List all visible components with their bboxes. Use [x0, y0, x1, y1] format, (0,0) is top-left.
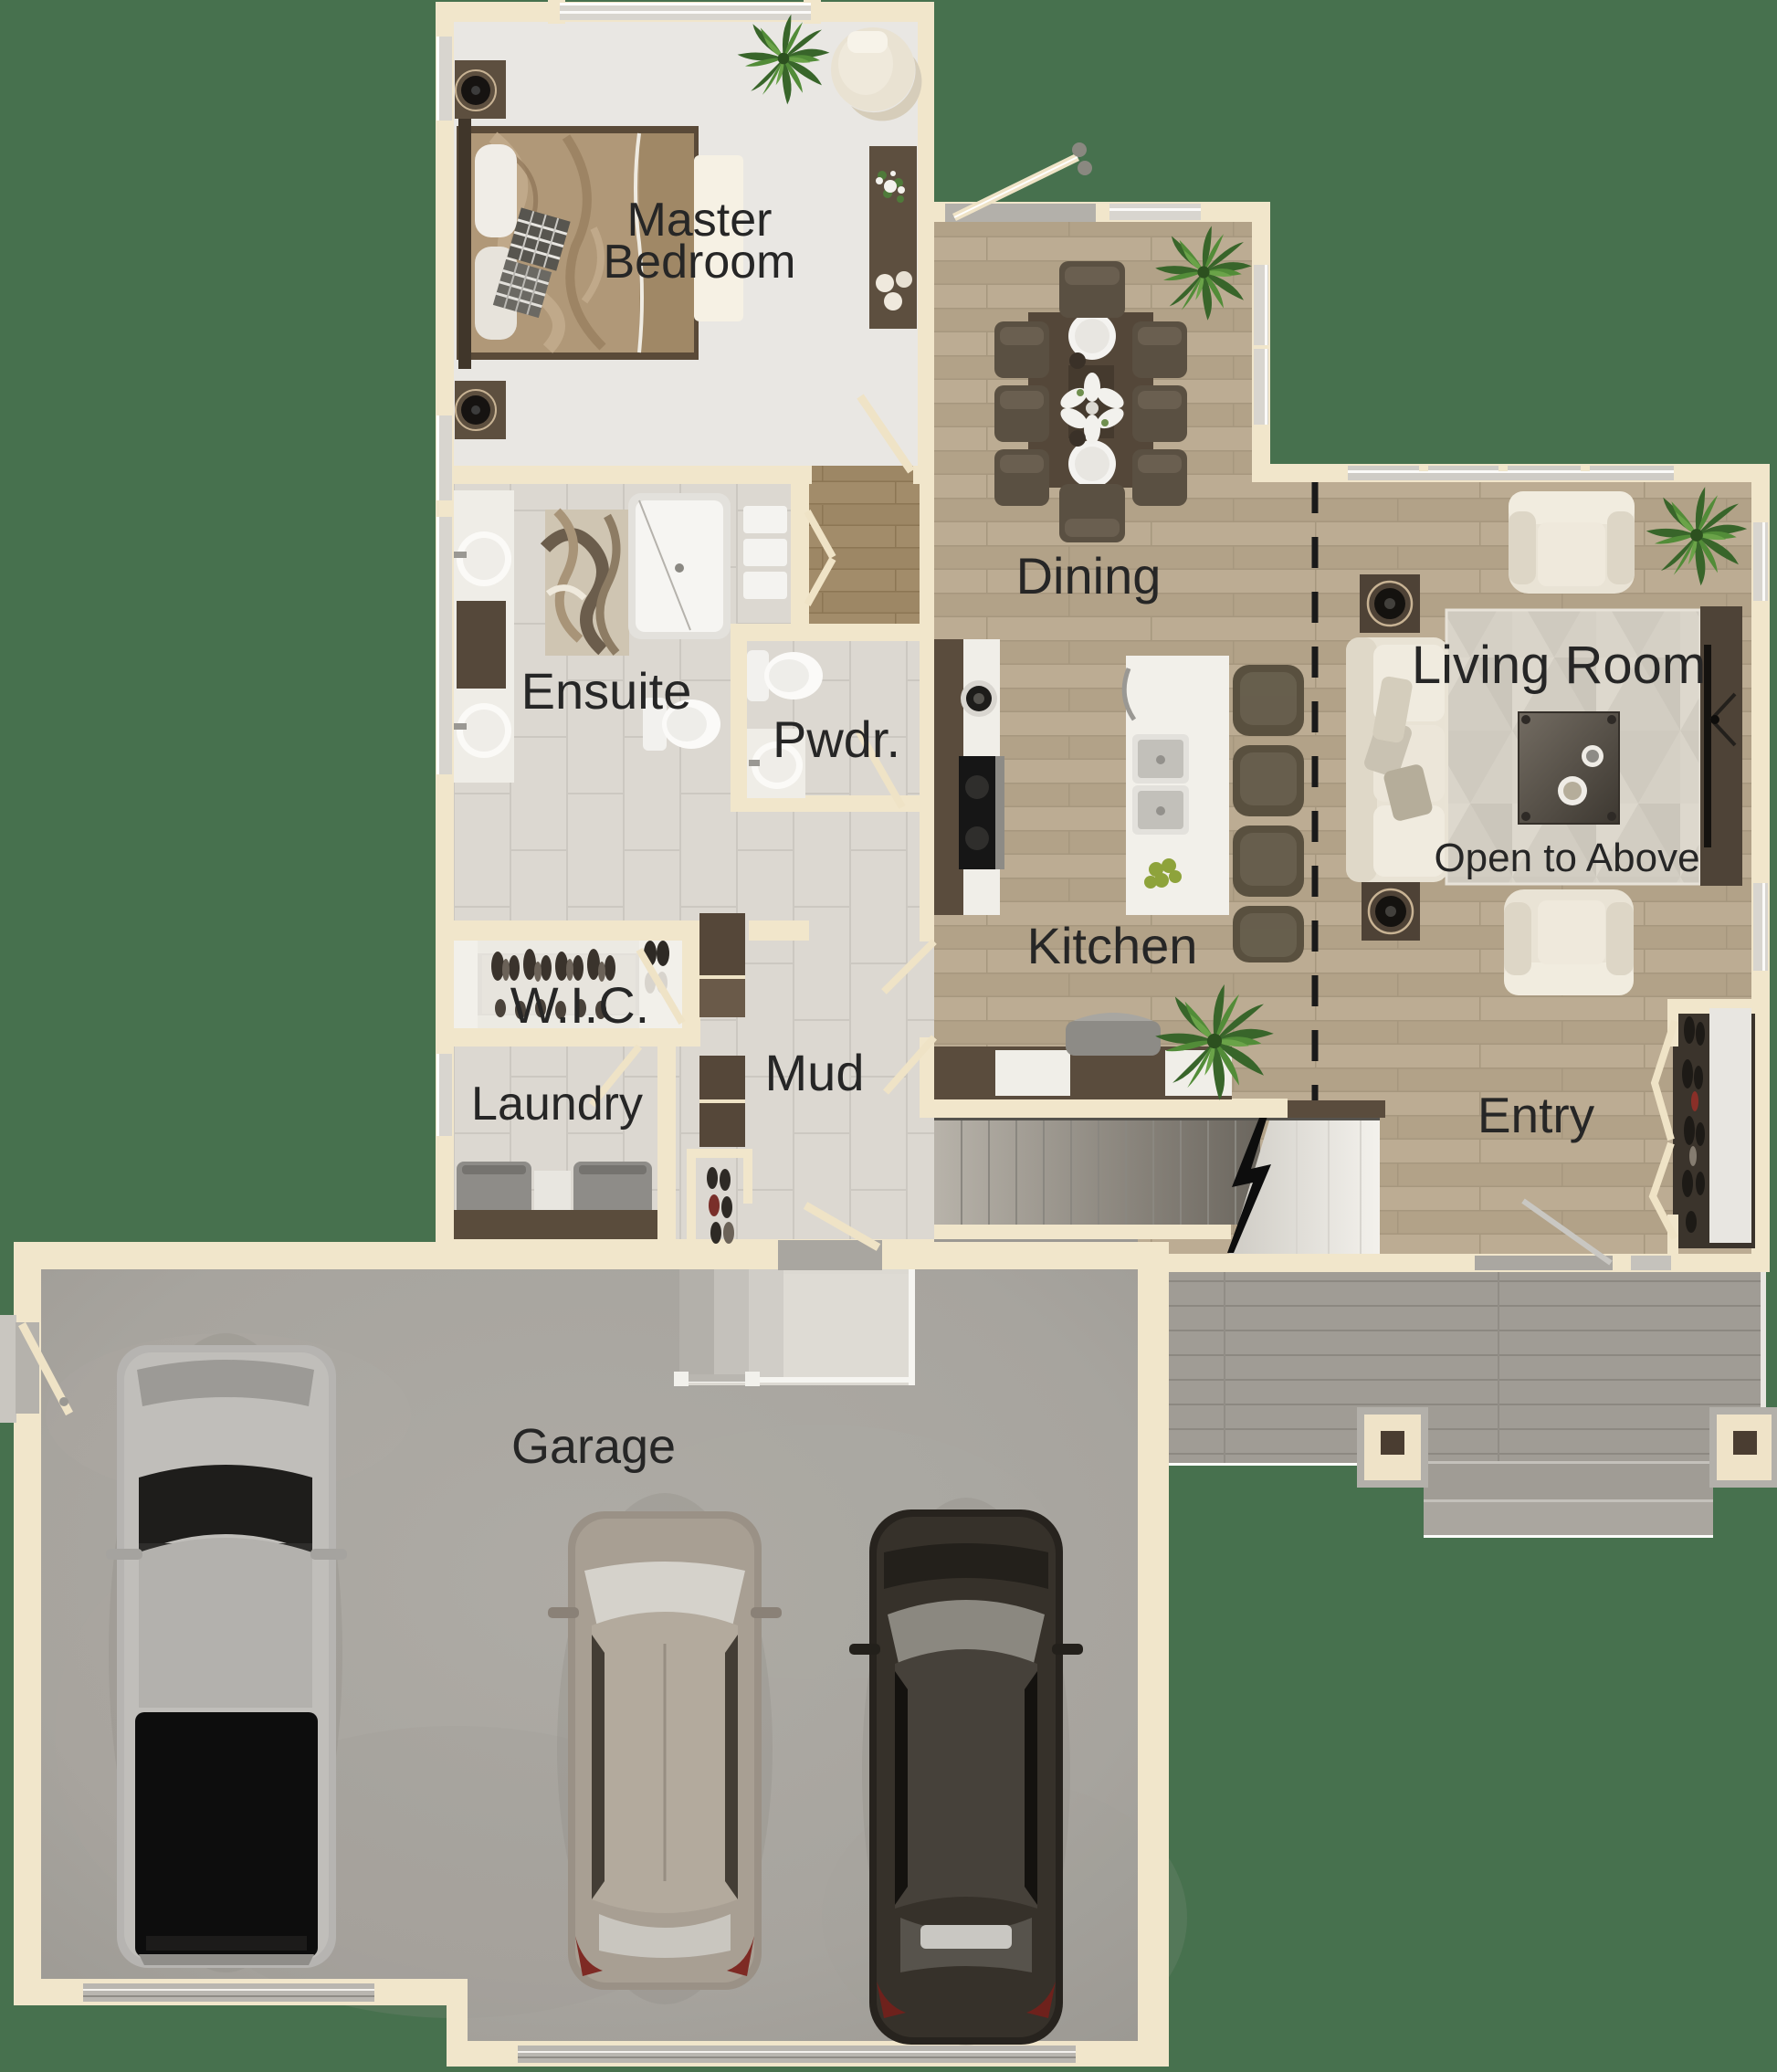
- svg-text:Dining: Dining: [1016, 547, 1162, 605]
- svg-text:Open to Above: Open to Above: [1434, 836, 1699, 880]
- svg-text:Ensuite: Ensuite: [521, 662, 692, 720]
- svg-text:Laundry: Laundry: [471, 1078, 643, 1131]
- svg-text:Kitchen: Kitchen: [1027, 917, 1198, 974]
- svg-text:Garage: Garage: [511, 1419, 676, 1474]
- svg-text:Mud: Mud: [765, 1044, 865, 1101]
- svg-text:Living Room: Living Room: [1412, 636, 1706, 695]
- svg-text:Bedroom: Bedroom: [604, 236, 796, 289]
- svg-text:Pwdr.: Pwdr.: [773, 710, 900, 768]
- svg-text:W.I.C.: W.I.C.: [510, 976, 649, 1034]
- svg-text:Entry: Entry: [1477, 1087, 1595, 1143]
